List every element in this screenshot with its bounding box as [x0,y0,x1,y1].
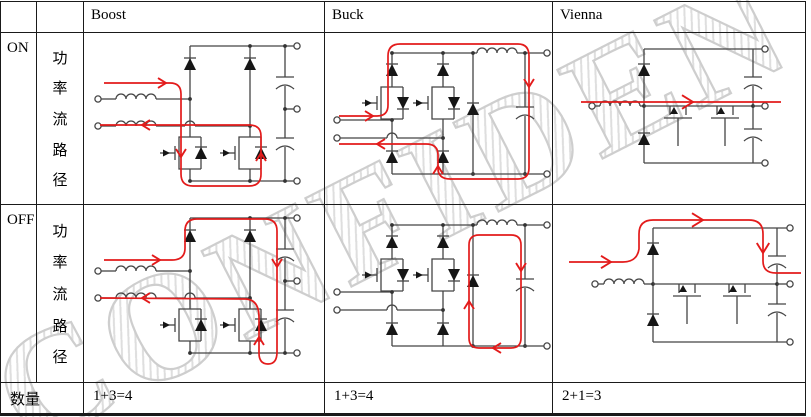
power-path-label-on: 功 率 流 路 径 [37,33,84,205]
quantity-vienna: 2+1=3 [553,383,805,413]
boost-on-cell [84,33,325,205]
column-header-vienna: Vienna [553,2,805,33]
vienna-on-circuit-diagram [553,33,804,204]
vienna-on-cell [553,33,805,205]
column-header-buck: Buck [325,2,553,33]
red-power-flow-path [339,44,534,179]
red-power-flow-path [100,78,266,186]
vienna-off-cell [553,205,805,383]
header-spacer-cell [37,2,84,33]
vienna-off-circuit-diagram [553,205,804,382]
boost-off-circuit-diagram [84,205,324,382]
confidential-topology-comparison-table: CONFIDENTIAL Boost Buck Vienna ON 功 率 流 … [0,0,811,417]
red-power-flow-path [569,213,801,273]
circuit-wiring [589,46,768,166]
column-header-boost: Boost [84,2,325,33]
boost-off-cell [84,205,325,383]
quantity-buck: 1+3=4 [325,383,553,413]
circuit-wiring [334,220,550,349]
header-corner-cell [1,2,37,33]
circuit-wiring [95,43,300,184]
buck-off-cell [325,205,553,383]
row-label-off: OFF [1,205,37,383]
boost-on-circuit-diagram [84,33,324,204]
quantity-boost: 1+3=4 [84,383,325,413]
red-power-flow-path [581,95,781,109]
quantity-row-label: 数量 [1,383,84,413]
buck-on-circuit-diagram [325,33,552,204]
buck-off-circuit-diagram [325,205,552,382]
buck-on-cell [325,33,553,205]
circuit-wiring [95,215,300,356]
comparison-table: Boost Buck Vienna ON 功 率 流 路 径 OFF 功 率 流… [0,1,806,416]
power-path-label-off: 功 率 流 路 径 [37,205,84,383]
row-label-on: ON [1,33,37,205]
